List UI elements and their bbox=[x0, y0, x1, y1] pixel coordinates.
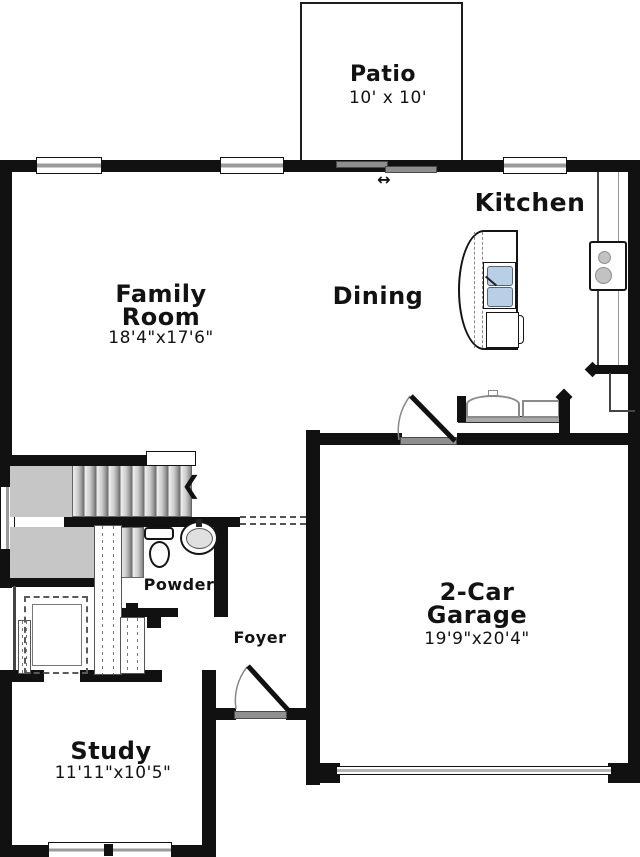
foyer-label: Foyer bbox=[234, 628, 287, 647]
powder-door-jamb bbox=[147, 617, 161, 628]
stairs-direction-arrow-icon: ❮ bbox=[181, 471, 201, 499]
garage-dims: 19'9"x20'4" bbox=[424, 629, 529, 649]
staircase-upper-run bbox=[72, 458, 192, 517]
burner-icon bbox=[598, 251, 611, 264]
dishwasher-icon bbox=[486, 312, 519, 348]
garage-wall-left bbox=[306, 430, 320, 785]
front-door-threshold bbox=[234, 711, 287, 719]
refrigerator-outline bbox=[609, 373, 611, 412]
stair-landing bbox=[10, 466, 72, 517]
window-mullion bbox=[104, 844, 113, 856]
island-counter-dashes bbox=[474, 232, 483, 348]
family-room-dims: 18'4"x17'6" bbox=[108, 328, 213, 348]
island-sink-icon bbox=[483, 262, 516, 309]
garage-wall-top-right bbox=[457, 433, 640, 445]
sliding-door-arrow-icon: ↔ bbox=[366, 170, 402, 189]
bench-tab bbox=[488, 390, 498, 396]
cased-opening bbox=[240, 523, 306, 525]
interior-wall-channel bbox=[94, 525, 122, 675]
sliding-door-panel-icon bbox=[336, 161, 388, 168]
garage-label-line2: Garage bbox=[427, 601, 527, 629]
sink-basin-icon bbox=[487, 287, 513, 307]
patio-label: Patio bbox=[350, 62, 416, 87]
powder-wall-bottom bbox=[120, 608, 178, 617]
floor-plan: Patio 10' x 10' ↔ ❮ bbox=[0, 0, 640, 857]
wall-left-thin bbox=[13, 586, 16, 674]
bench-wall-stub bbox=[457, 396, 466, 422]
window bbox=[220, 157, 284, 174]
garage-wall-bottom-left bbox=[306, 763, 340, 783]
study-label: Study bbox=[70, 737, 151, 765]
study-dims: 11'11"x10'5" bbox=[55, 763, 172, 783]
family-room-label-line2: Room bbox=[122, 303, 200, 331]
study-wall-right bbox=[202, 670, 216, 857]
entry-bench-icon bbox=[466, 395, 520, 418]
powder-label: Powder bbox=[144, 575, 215, 594]
refrigerator-outline bbox=[609, 410, 635, 412]
garage-wall-bottom-right bbox=[608, 763, 640, 783]
front-door-icon bbox=[232, 662, 290, 712]
dishwasher-handle bbox=[518, 315, 524, 344]
garage-overhead-door-icon bbox=[336, 766, 612, 775]
garage-entry-door-icon bbox=[396, 392, 458, 444]
burner-icon bbox=[595, 267, 612, 284]
closet-shelf-outline bbox=[32, 604, 82, 666]
entry-bench-icon bbox=[522, 400, 560, 418]
stair-rail bbox=[146, 451, 196, 466]
range-icon bbox=[589, 241, 627, 291]
garage-wall-top-left bbox=[306, 433, 402, 445]
stair-landing bbox=[10, 527, 95, 578]
window bbox=[503, 157, 567, 174]
faucet-icon bbox=[196, 519, 202, 527]
kitchen-label: Kitchen bbox=[475, 188, 586, 217]
powder-sink-basin-icon bbox=[186, 528, 213, 549]
toilet-tank-icon bbox=[144, 527, 174, 540]
patio-dims: 10' x 10' bbox=[349, 88, 427, 108]
toilet-bowl-icon bbox=[149, 541, 170, 568]
study-wall-left bbox=[0, 682, 12, 857]
dining-label: Dining bbox=[333, 282, 424, 310]
wall-right bbox=[628, 160, 640, 783]
powder-door-jamb bbox=[126, 603, 138, 609]
interior-wall-channel bbox=[120, 617, 145, 674]
cased-opening bbox=[240, 516, 306, 518]
stair-wall bbox=[8, 455, 147, 466]
window bbox=[36, 157, 102, 174]
